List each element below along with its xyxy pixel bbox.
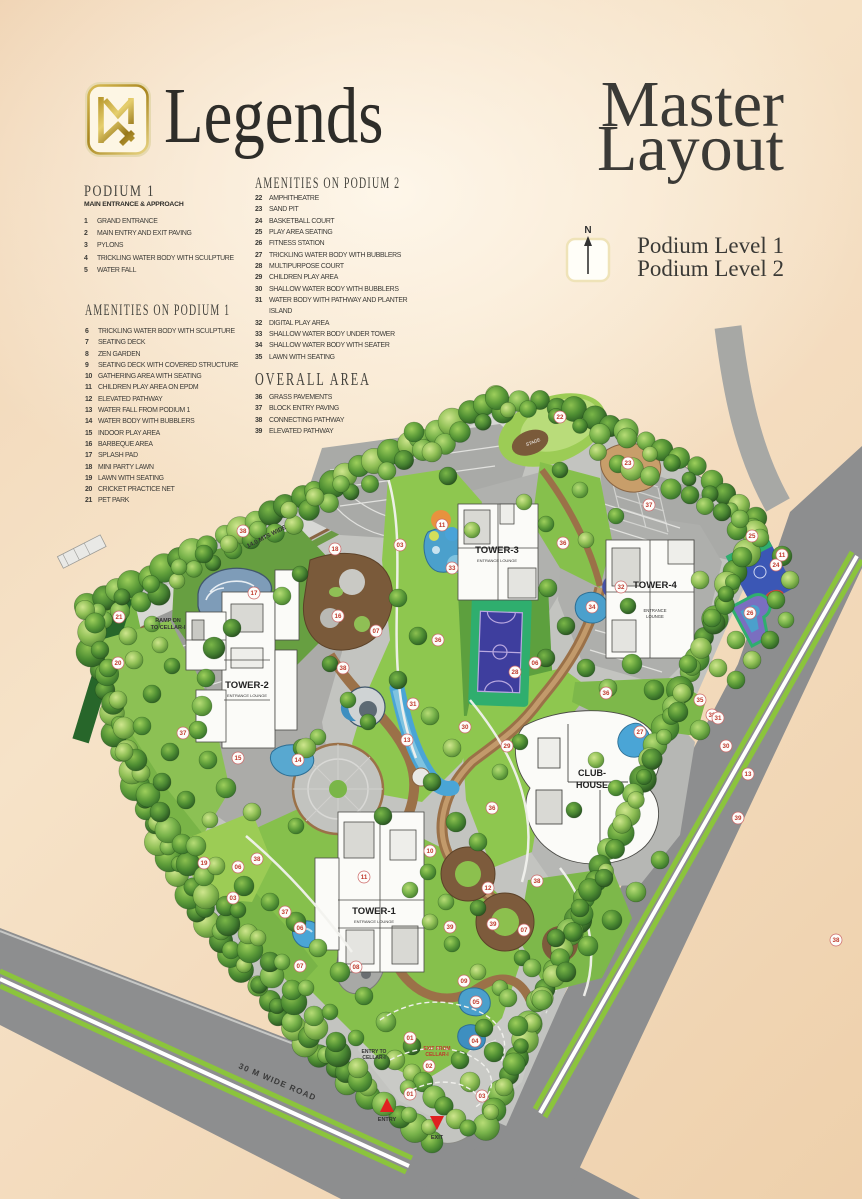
svg-text:TOWER-4: TOWER-4: [633, 580, 677, 591]
svg-text:38: 38: [240, 528, 247, 535]
svg-text:04: 04: [472, 1038, 479, 1045]
svg-text:05: 05: [473, 999, 480, 1006]
svg-text:32: 32: [618, 584, 625, 591]
svg-text:07: 07: [521, 927, 528, 934]
svg-text:06: 06: [235, 864, 242, 871]
svg-text:ENTRY: ENTRY: [378, 1117, 397, 1123]
svg-text:TOWER-2: TOWER-2: [225, 680, 269, 691]
svg-text:19: 19: [201, 860, 208, 867]
svg-text:ENTRANCE LOUNGE: ENTRANCE LOUNGE: [227, 693, 267, 698]
svg-text:30: 30: [462, 724, 469, 731]
svg-text:25: 25: [749, 533, 756, 540]
svg-text:20: 20: [115, 660, 122, 667]
svg-text:TOWER-3: TOWER-3: [475, 545, 519, 556]
svg-text:33: 33: [449, 565, 456, 572]
svg-text:29: 29: [504, 743, 511, 750]
svg-text:03: 03: [397, 542, 404, 549]
svg-text:01: 01: [407, 1035, 414, 1042]
svg-text:37: 37: [180, 730, 187, 737]
svg-text:LOUNGE: LOUNGE: [646, 614, 664, 619]
svg-text:21: 21: [116, 614, 123, 621]
svg-text:38: 38: [833, 937, 840, 944]
svg-text:36: 36: [489, 805, 496, 812]
svg-text:ENTRANCE: ENTRANCE: [643, 608, 666, 613]
svg-text:CELLAR-I: CELLAR-I: [362, 1055, 386, 1061]
svg-text:12: 12: [485, 885, 492, 892]
svg-text:31: 31: [410, 701, 417, 708]
svg-text:08: 08: [353, 964, 360, 971]
svg-text:37: 37: [282, 909, 289, 916]
svg-text:36: 36: [603, 690, 610, 697]
svg-text:18: 18: [332, 546, 339, 553]
svg-text:17: 17: [251, 590, 258, 597]
svg-text:38: 38: [340, 665, 347, 672]
svg-text:EXIT: EXIT: [431, 1135, 444, 1141]
svg-text:01: 01: [407, 1091, 414, 1098]
svg-text:02: 02: [426, 1063, 433, 1070]
svg-text:37: 37: [646, 502, 653, 509]
svg-text:06: 06: [297, 925, 304, 932]
svg-text:13: 13: [745, 771, 752, 778]
svg-text:39: 39: [447, 924, 454, 931]
svg-text:26: 26: [747, 610, 754, 617]
svg-text:24: 24: [773, 562, 780, 569]
svg-text:RAMP DN: RAMP DN: [155, 618, 181, 624]
svg-text:11: 11: [361, 874, 368, 881]
svg-text:15: 15: [235, 755, 242, 762]
svg-text:22: 22: [557, 414, 564, 421]
svg-text:30: 30: [723, 743, 730, 750]
svg-text:31: 31: [715, 715, 722, 722]
svg-text:27: 27: [637, 729, 644, 736]
svg-text:38: 38: [254, 856, 261, 863]
svg-text:28: 28: [512, 669, 519, 676]
svg-text:39: 39: [490, 921, 497, 928]
svg-text:CLUB-: CLUB-: [578, 768, 606, 778]
svg-text:ENTRANCE LOUNGE: ENTRANCE LOUNGE: [477, 558, 517, 563]
svg-text:23: 23: [625, 460, 632, 467]
svg-text:TO CELLAR-I: TO CELLAR-I: [151, 625, 186, 631]
svg-text:36: 36: [435, 637, 442, 644]
svg-text:14: 14: [295, 757, 302, 764]
svg-text:35: 35: [697, 697, 704, 704]
svg-text:06: 06: [532, 660, 539, 667]
svg-text:11: 11: [779, 552, 786, 559]
svg-text:07: 07: [373, 628, 380, 635]
svg-text:13: 13: [404, 737, 411, 744]
svg-text:11: 11: [439, 522, 446, 529]
svg-text:ENTRANCE LOUNGE: ENTRANCE LOUNGE: [354, 919, 394, 924]
svg-text:09: 09: [461, 978, 468, 985]
svg-text:34: 34: [589, 604, 596, 611]
svg-text:38: 38: [534, 878, 541, 885]
svg-text:10: 10: [427, 848, 434, 855]
svg-text:03: 03: [230, 895, 237, 902]
svg-text:TOWER-1: TOWER-1: [352, 906, 396, 917]
svg-text:39: 39: [735, 815, 742, 822]
svg-text:07: 07: [297, 963, 304, 970]
svg-text:16: 16: [335, 613, 342, 620]
svg-text:CELLAR-I: CELLAR-I: [425, 1052, 449, 1058]
svg-text:HOUSE: HOUSE: [576, 780, 608, 790]
svg-text:36: 36: [560, 540, 567, 547]
